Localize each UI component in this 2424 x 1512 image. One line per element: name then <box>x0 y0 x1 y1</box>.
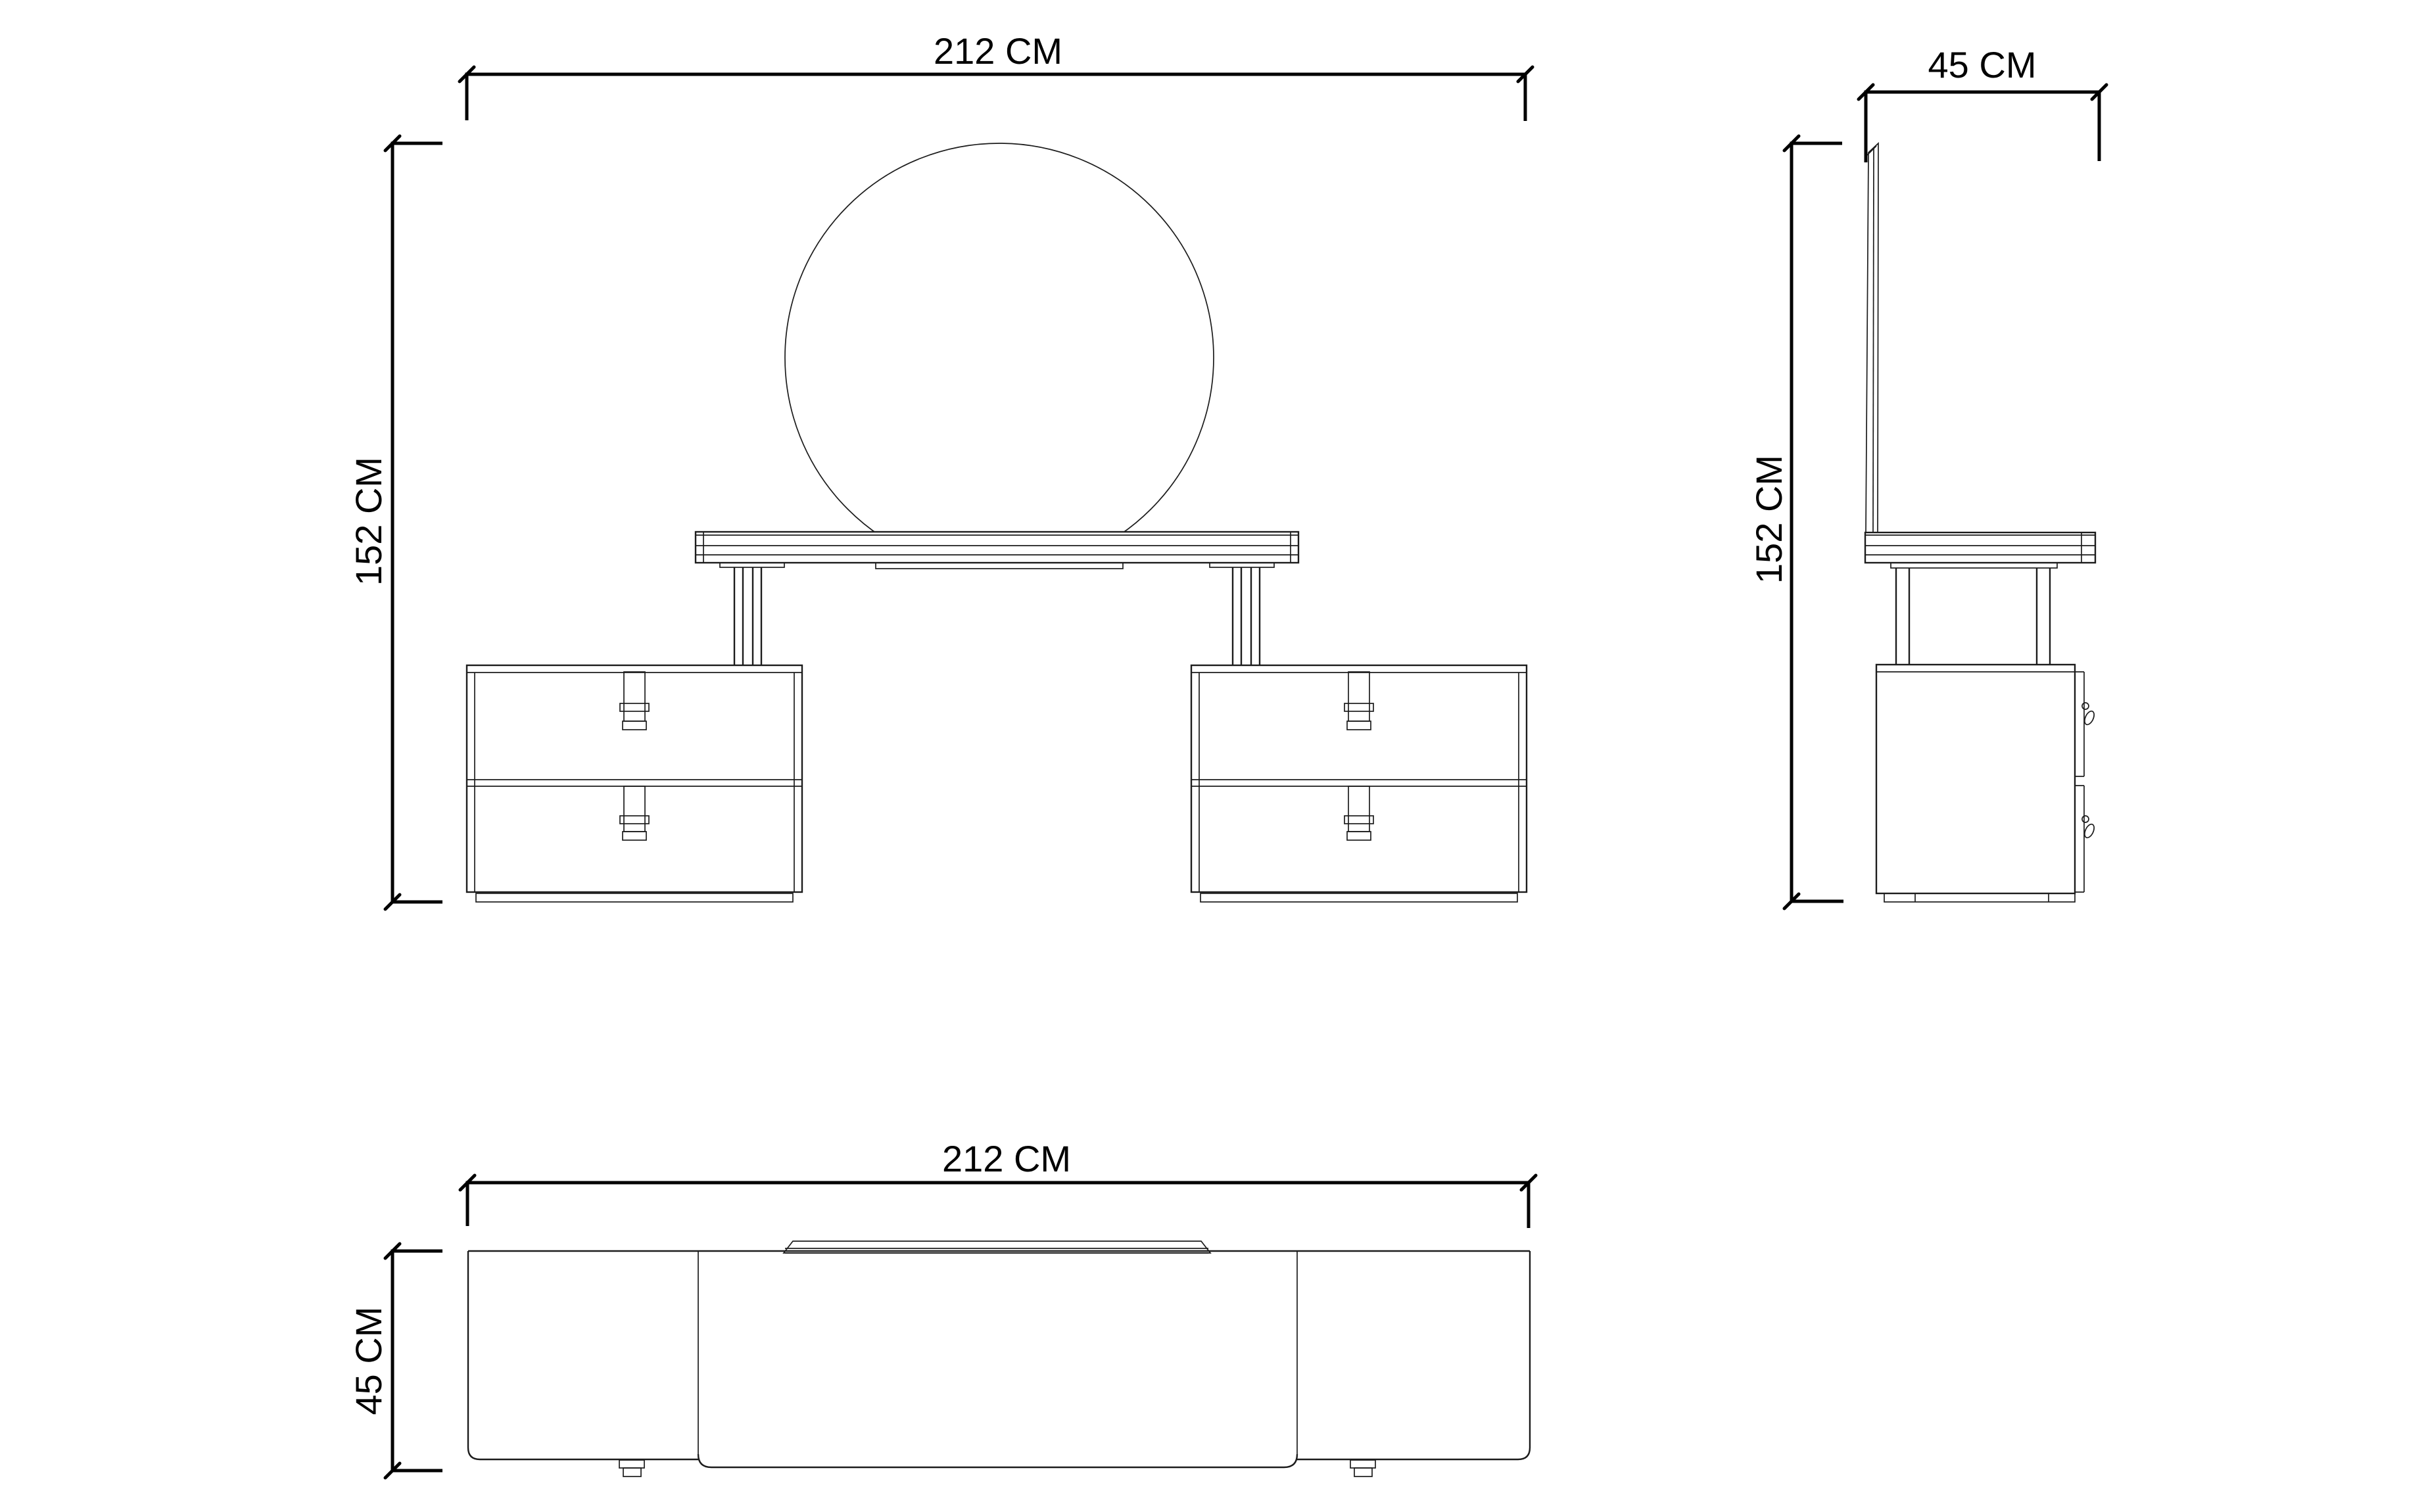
handle-strap <box>624 786 645 832</box>
dimension-line <box>392 1251 442 1471</box>
technical-drawing-svg: 212 CM 152 CM <box>0 0 2424 1512</box>
dimension-line <box>467 1183 1529 1228</box>
hook-loop <box>2083 822 2096 839</box>
foot-upper <box>1350 1460 1375 1468</box>
cabinet-inner-edges <box>1191 673 1527 892</box>
mirror-panel-bevel <box>1867 146 1876 155</box>
cabinet-outline <box>467 665 802 892</box>
top-drawing <box>468 1241 1530 1477</box>
cabinet-plinth <box>1200 893 1517 902</box>
plan-right-cabinet <box>1297 1251 1530 1459</box>
top-width-dimension: 212 CM <box>460 1138 1536 1228</box>
side-height-dimension: 152 CM <box>1748 136 1843 909</box>
hook-loop <box>2083 709 2096 726</box>
drawer-handle-bottom <box>1344 786 1373 840</box>
plan-left-cabinet <box>468 1251 698 1459</box>
foot-lower <box>1354 1468 1372 1477</box>
table-top-edge-lines <box>1865 535 2095 555</box>
front-height-label: 152 CM <box>348 457 389 586</box>
cabinet-plinth <box>1884 893 2075 902</box>
drawer-divider <box>1191 780 1527 786</box>
mirror-panel-outline <box>1866 143 1878 532</box>
side-cabinet <box>1876 665 2096 902</box>
mirror-circle <box>785 143 1214 572</box>
drawing-sheet: 212 CM 152 CM <box>0 0 2424 1512</box>
plinth-feet-lines <box>1915 893 2049 902</box>
front-leg-right <box>1233 567 1260 665</box>
drawer-divider <box>467 780 802 786</box>
dimension-line <box>392 143 442 902</box>
dimension-line <box>467 74 1525 121</box>
dimension-line <box>1866 92 2099 162</box>
top-view: 212 CM 45 CM <box>348 1138 1536 1478</box>
cabinet-outline <box>1876 665 2075 893</box>
side-legs <box>1896 568 2050 665</box>
drawer-handle-top <box>1344 672 1373 730</box>
handle-cap <box>623 721 646 730</box>
plan-foot-left <box>619 1460 644 1477</box>
drawer-handle-top <box>620 672 649 730</box>
top-width-label: 212 CM <box>942 1138 1071 1179</box>
top-depth-label: 45 CM <box>348 1307 389 1415</box>
handle-cap <box>1347 721 1371 730</box>
front-leg-left <box>734 567 761 665</box>
side-depth-dimension: 45 CM <box>1859 44 2106 162</box>
side-height-label: 152 CM <box>1748 455 1790 584</box>
hook-ring-small <box>2082 816 2089 822</box>
side-drawing <box>1865 143 2096 902</box>
side-view: 45 CM 152 CM <box>1748 44 2106 909</box>
handle-strap <box>1348 672 1369 721</box>
plan-foot-right <box>1350 1460 1375 1477</box>
front-drawing <box>467 143 1527 902</box>
handle-cap <box>1347 832 1371 840</box>
front-view: 212 CM 152 CM <box>348 30 1533 909</box>
hook-ring-small <box>2082 703 2089 709</box>
front-width-label: 212 CM <box>934 30 1062 72</box>
handle-strap <box>624 672 645 721</box>
top-depth-dimension: 45 CM <box>348 1244 442 1478</box>
side-depth-label: 45 CM <box>1928 44 2037 85</box>
front-width-dimension: 212 CM <box>460 30 1533 121</box>
front-cabinet-left <box>467 665 802 902</box>
cabinet-plinth <box>476 893 793 902</box>
side-table-top <box>1865 532 2095 568</box>
handle-cap <box>623 832 646 840</box>
side-mirror-panel <box>1866 143 1878 532</box>
drawer-handle-bottom <box>620 786 649 840</box>
front-cabinet-right <box>1191 665 1527 902</box>
mirror-clip-mask <box>845 532 1154 580</box>
foot-upper <box>619 1460 644 1468</box>
mirror-panel-inner-line <box>1873 149 1874 532</box>
handle-strap <box>1348 786 1369 832</box>
front-height-dimension: 152 CM <box>348 136 442 909</box>
table-top-outline <box>1865 532 2095 563</box>
cabinet-outline <box>1191 665 1527 892</box>
table-under-lip <box>1891 563 2057 568</box>
plan-centre-front-edge <box>698 1454 1297 1467</box>
cabinet-inner-edges <box>467 673 802 892</box>
dimension-line <box>1792 143 1843 901</box>
foot-lower <box>623 1468 641 1477</box>
